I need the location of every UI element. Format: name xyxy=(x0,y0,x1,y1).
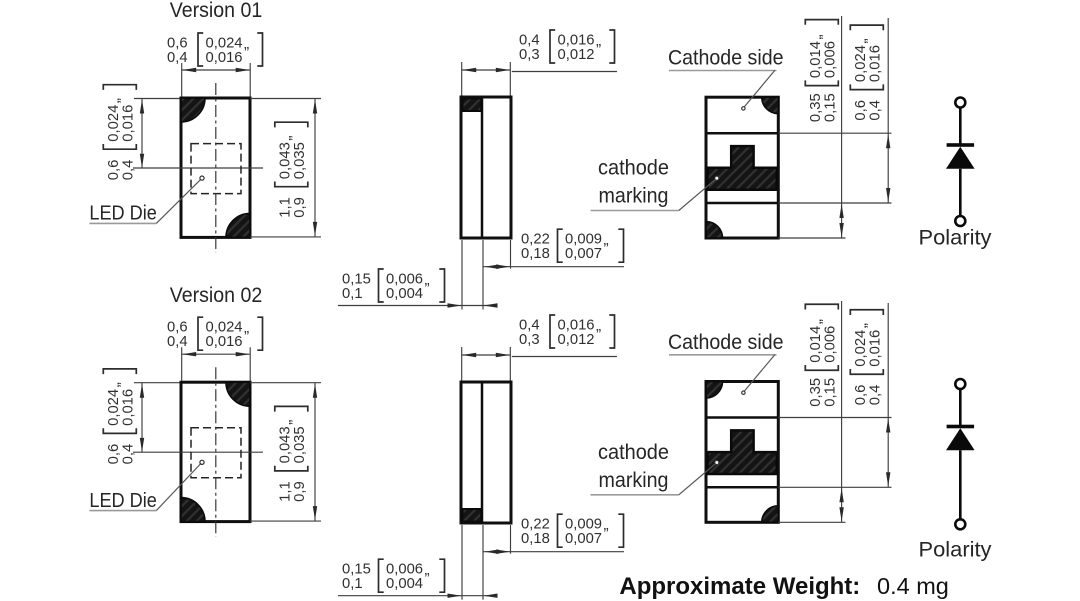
svg-text:Version 01: Version 01 xyxy=(170,0,263,22)
svg-text:0,007: 0,007 xyxy=(565,531,602,547)
svg-text:0,3: 0,3 xyxy=(519,47,540,63)
svg-text:Polarity: Polarity xyxy=(919,227,993,250)
svg-text:0,007: 0,007 xyxy=(565,246,602,262)
svg-text:”: ” xyxy=(817,34,834,39)
svg-text:0,4: 0,4 xyxy=(167,50,188,66)
svg-text:0,016: 0,016 xyxy=(867,45,883,82)
svg-text:”: ” xyxy=(596,42,601,59)
svg-text:”: ” xyxy=(287,136,304,141)
svg-text:”: ” xyxy=(425,571,430,588)
svg-text:0,016: 0,016 xyxy=(120,389,136,426)
svg-text:”: ” xyxy=(604,241,609,258)
svg-text:0,9: 0,9 xyxy=(292,197,308,218)
svg-text:0,4: 0,4 xyxy=(167,334,188,350)
svg-text:”: ” xyxy=(244,329,249,346)
svg-text:0,035: 0,035 xyxy=(292,142,308,179)
svg-text:0,4: 0,4 xyxy=(120,444,136,465)
svg-text:Cathode side: Cathode side xyxy=(668,47,784,70)
svg-text:0,1: 0,1 xyxy=(342,286,363,302)
svg-text:”: ” xyxy=(287,420,304,425)
svg-text:0,9: 0,9 xyxy=(292,481,308,502)
svg-text:Polarity: Polarity xyxy=(919,539,993,562)
svg-text:”: ” xyxy=(244,45,249,62)
svg-text:”: ” xyxy=(817,319,834,324)
svg-text:0,3: 0,3 xyxy=(519,332,540,348)
svg-text:LED Die: LED Die xyxy=(89,489,156,512)
svg-text:0,004: 0,004 xyxy=(386,286,423,302)
svg-text:”: ” xyxy=(115,382,132,387)
svg-text:Approximate Weight:: Approximate Weight: xyxy=(619,573,860,600)
svg-text:Cathode side: Cathode side xyxy=(668,331,784,354)
svg-text:0,1: 0,1 xyxy=(342,576,363,592)
svg-text:0,4: 0,4 xyxy=(120,160,136,181)
svg-text:0,016: 0,016 xyxy=(206,50,243,66)
svg-text:cathode: cathode xyxy=(598,157,669,180)
svg-text:0,035: 0,035 xyxy=(292,426,308,463)
svg-text:0,4: 0,4 xyxy=(867,100,883,121)
svg-text:”: ” xyxy=(604,526,609,543)
svg-text:0,016: 0,016 xyxy=(206,334,243,350)
svg-text:0,012: 0,012 xyxy=(558,47,595,63)
svg-text:0,004: 0,004 xyxy=(386,576,423,592)
svg-text:”: ” xyxy=(115,98,132,103)
svg-text:0,18: 0,18 xyxy=(521,531,550,547)
svg-text:0,006: 0,006 xyxy=(822,326,838,363)
svg-text:0,016: 0,016 xyxy=(120,105,136,142)
svg-text:0,15: 0,15 xyxy=(822,93,838,122)
svg-text:LED Die: LED Die xyxy=(89,202,156,225)
svg-text:”: ” xyxy=(596,327,601,344)
svg-text:0,012: 0,012 xyxy=(558,332,595,348)
svg-text:0,4: 0,4 xyxy=(867,385,883,406)
svg-text:cathode: cathode xyxy=(598,441,669,464)
svg-text:”: ” xyxy=(862,323,879,328)
svg-text:”: ” xyxy=(425,281,430,298)
svg-text:marking: marking xyxy=(599,185,669,208)
svg-text:”: ” xyxy=(862,38,879,43)
svg-text:0,016: 0,016 xyxy=(867,330,883,367)
svg-text:0.4 mg: 0.4 mg xyxy=(877,573,949,599)
svg-text:0,15: 0,15 xyxy=(822,378,838,407)
svg-text:Version 02: Version 02 xyxy=(170,284,263,307)
svg-text:0,006: 0,006 xyxy=(822,41,838,78)
svg-text:0,18: 0,18 xyxy=(521,246,550,262)
svg-text:marking: marking xyxy=(599,469,669,492)
